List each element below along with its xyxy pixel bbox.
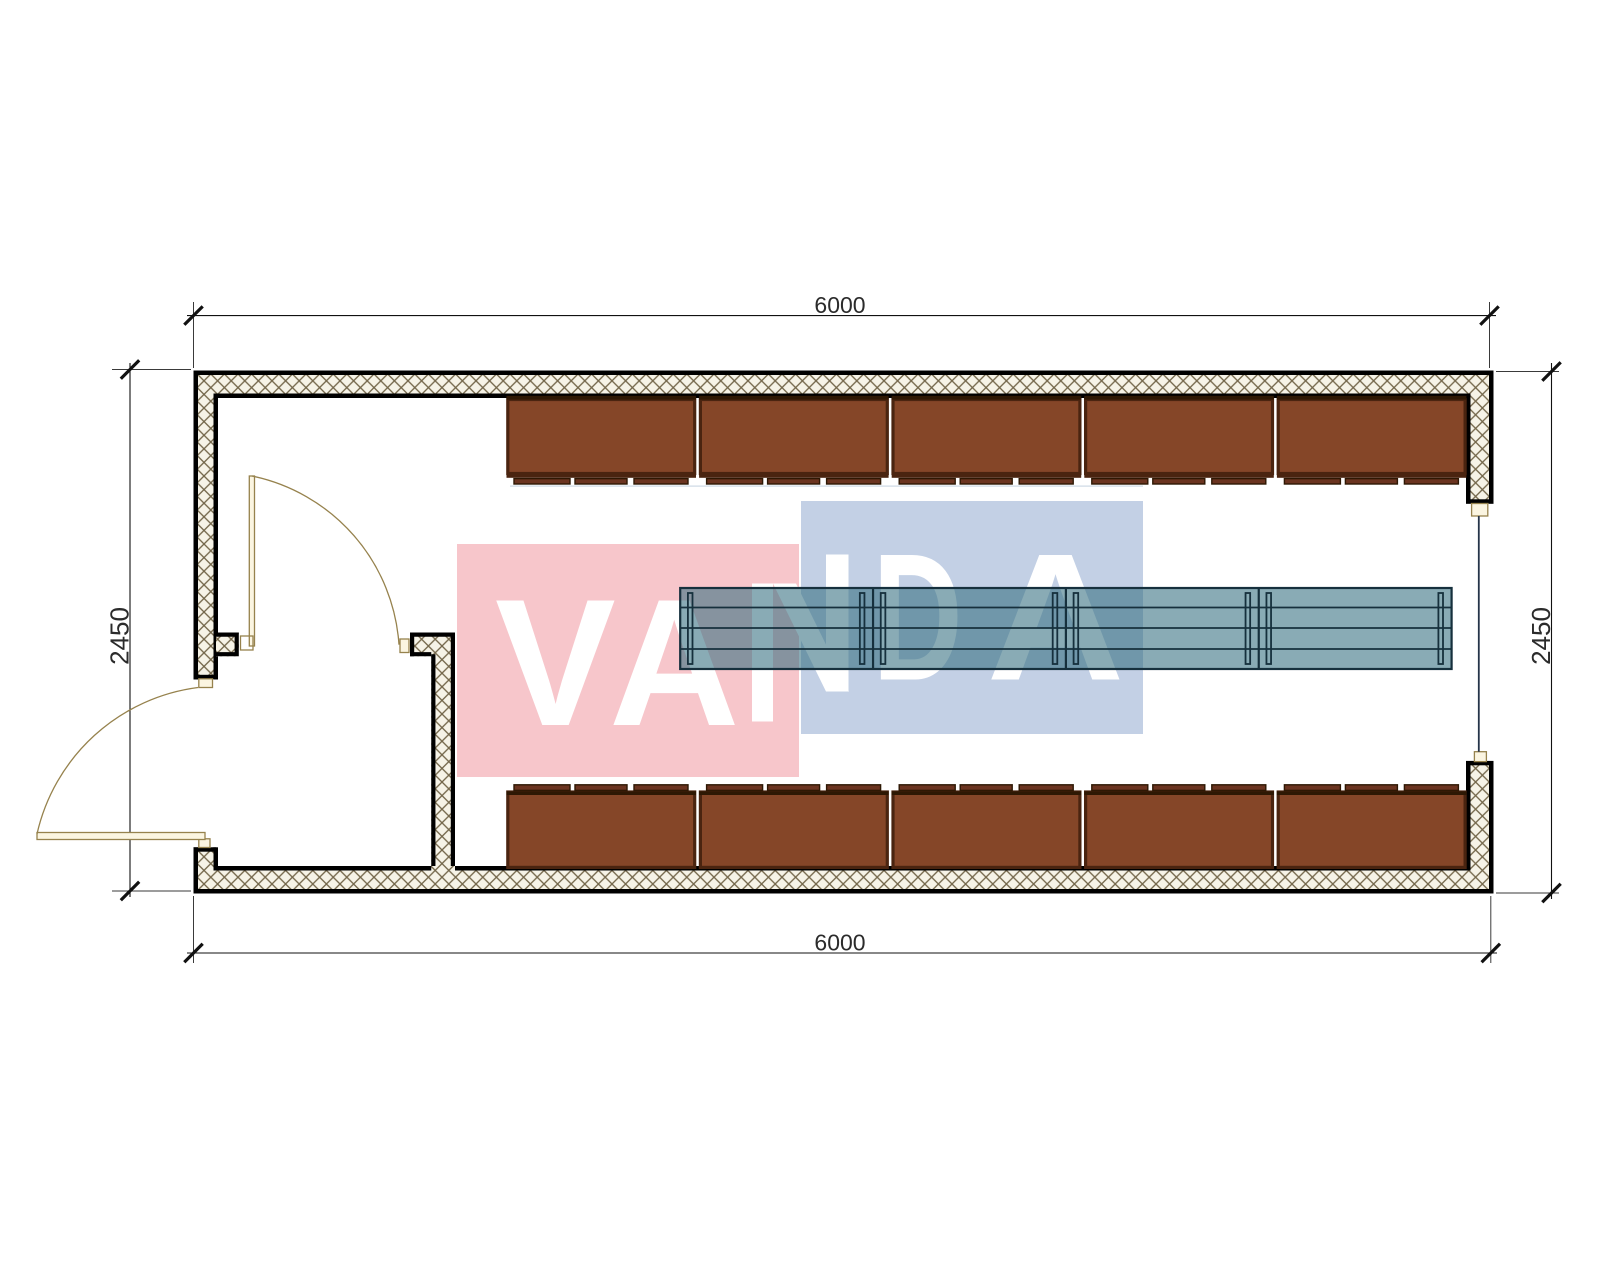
svg-text:2450: 2450 [105,607,135,665]
svg-text:6000: 6000 [814,930,865,956]
svg-text:2450: 2450 [1526,607,1556,665]
svg-text:6000: 6000 [814,292,865,318]
